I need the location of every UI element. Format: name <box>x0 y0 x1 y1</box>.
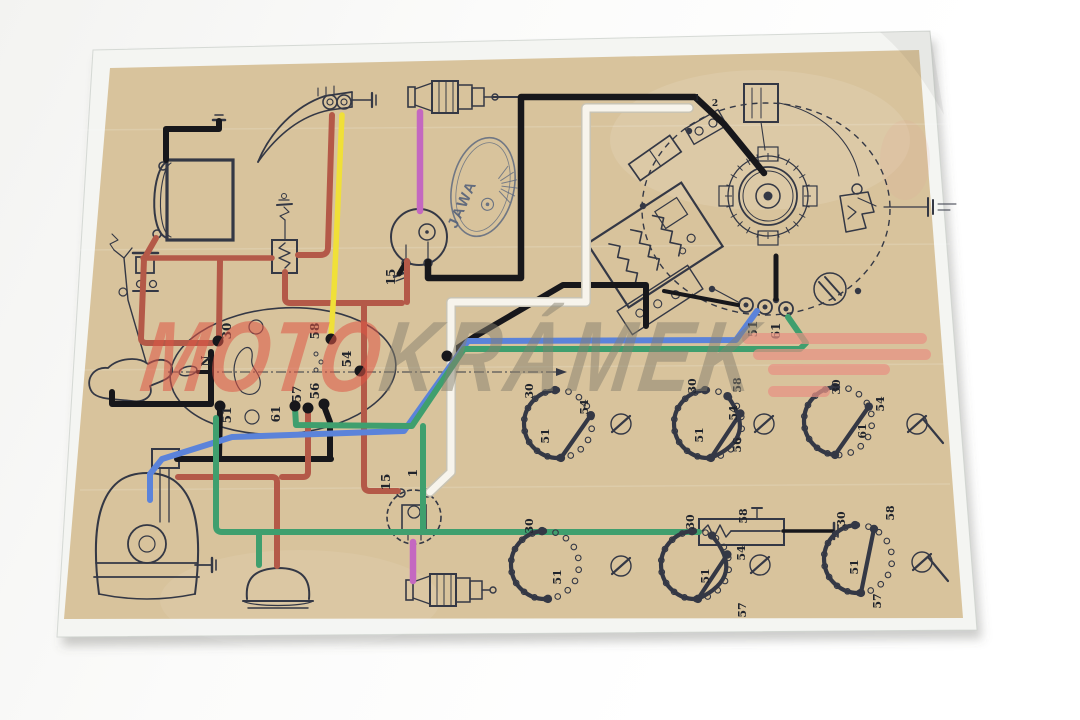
svg-text:1: 1 <box>406 469 420 477</box>
svg-text:30: 30 <box>523 383 536 399</box>
watermark-stripe <box>742 333 927 344</box>
svg-text:1: 1 <box>694 94 700 104</box>
svg-text:30: 30 <box>684 514 697 530</box>
watermark-stripe <box>768 386 830 397</box>
photo-of-jawa-wiring-diagram: JAWA305854N51615756151515161123054513058… <box>0 0 1080 720</box>
terminal-dot <box>355 366 366 377</box>
diagram-canvas: JAWA305854N51615756151515161123054513058… <box>0 0 1080 720</box>
svg-text:56: 56 <box>308 383 322 400</box>
svg-text:57: 57 <box>871 593 884 608</box>
svg-text:54: 54 <box>735 545 748 561</box>
svg-text:51: 51 <box>693 427 706 442</box>
svg-text:30: 30 <box>523 518 536 534</box>
svg-text:30: 30 <box>835 511 848 527</box>
svg-text:54: 54 <box>340 351 354 368</box>
svg-text:30: 30 <box>830 379 843 395</box>
terminal-dot <box>326 334 337 345</box>
svg-text:61: 61 <box>856 423 869 438</box>
svg-text:58: 58 <box>737 508 750 524</box>
svg-text:N: N <box>199 355 213 366</box>
svg-text:61: 61 <box>269 406 283 423</box>
svg-text:15: 15 <box>379 474 393 491</box>
svg-text:54: 54 <box>578 399 591 415</box>
svg-text:30: 30 <box>220 323 234 340</box>
svg-text:15: 15 <box>384 269 398 286</box>
svg-text:54: 54 <box>874 396 887 412</box>
terminal-dot <box>303 403 314 414</box>
watermark-stripe <box>753 349 931 360</box>
wiring-diagram-svg: JAWA305854N51615756151515161123054513058… <box>0 0 1080 720</box>
svg-text:2: 2 <box>712 99 718 109</box>
terminal-dot <box>442 351 453 362</box>
svg-text:51: 51 <box>220 407 234 424</box>
watermark-stripe <box>768 364 890 375</box>
svg-text:54: 54 <box>727 405 740 421</box>
svg-text:51: 51 <box>539 428 552 443</box>
svg-text:57: 57 <box>290 386 304 403</box>
svg-text:51: 51 <box>699 568 712 583</box>
svg-text:58: 58 <box>731 377 744 393</box>
svg-text:58: 58 <box>308 323 322 340</box>
svg-text:51: 51 <box>551 569 564 584</box>
svg-text:30: 30 <box>686 378 699 394</box>
svg-text:57: 57 <box>736 602 749 617</box>
svg-text:58: 58 <box>884 505 897 521</box>
svg-text:51: 51 <box>848 559 861 574</box>
svg-text:56: 56 <box>731 437 744 453</box>
